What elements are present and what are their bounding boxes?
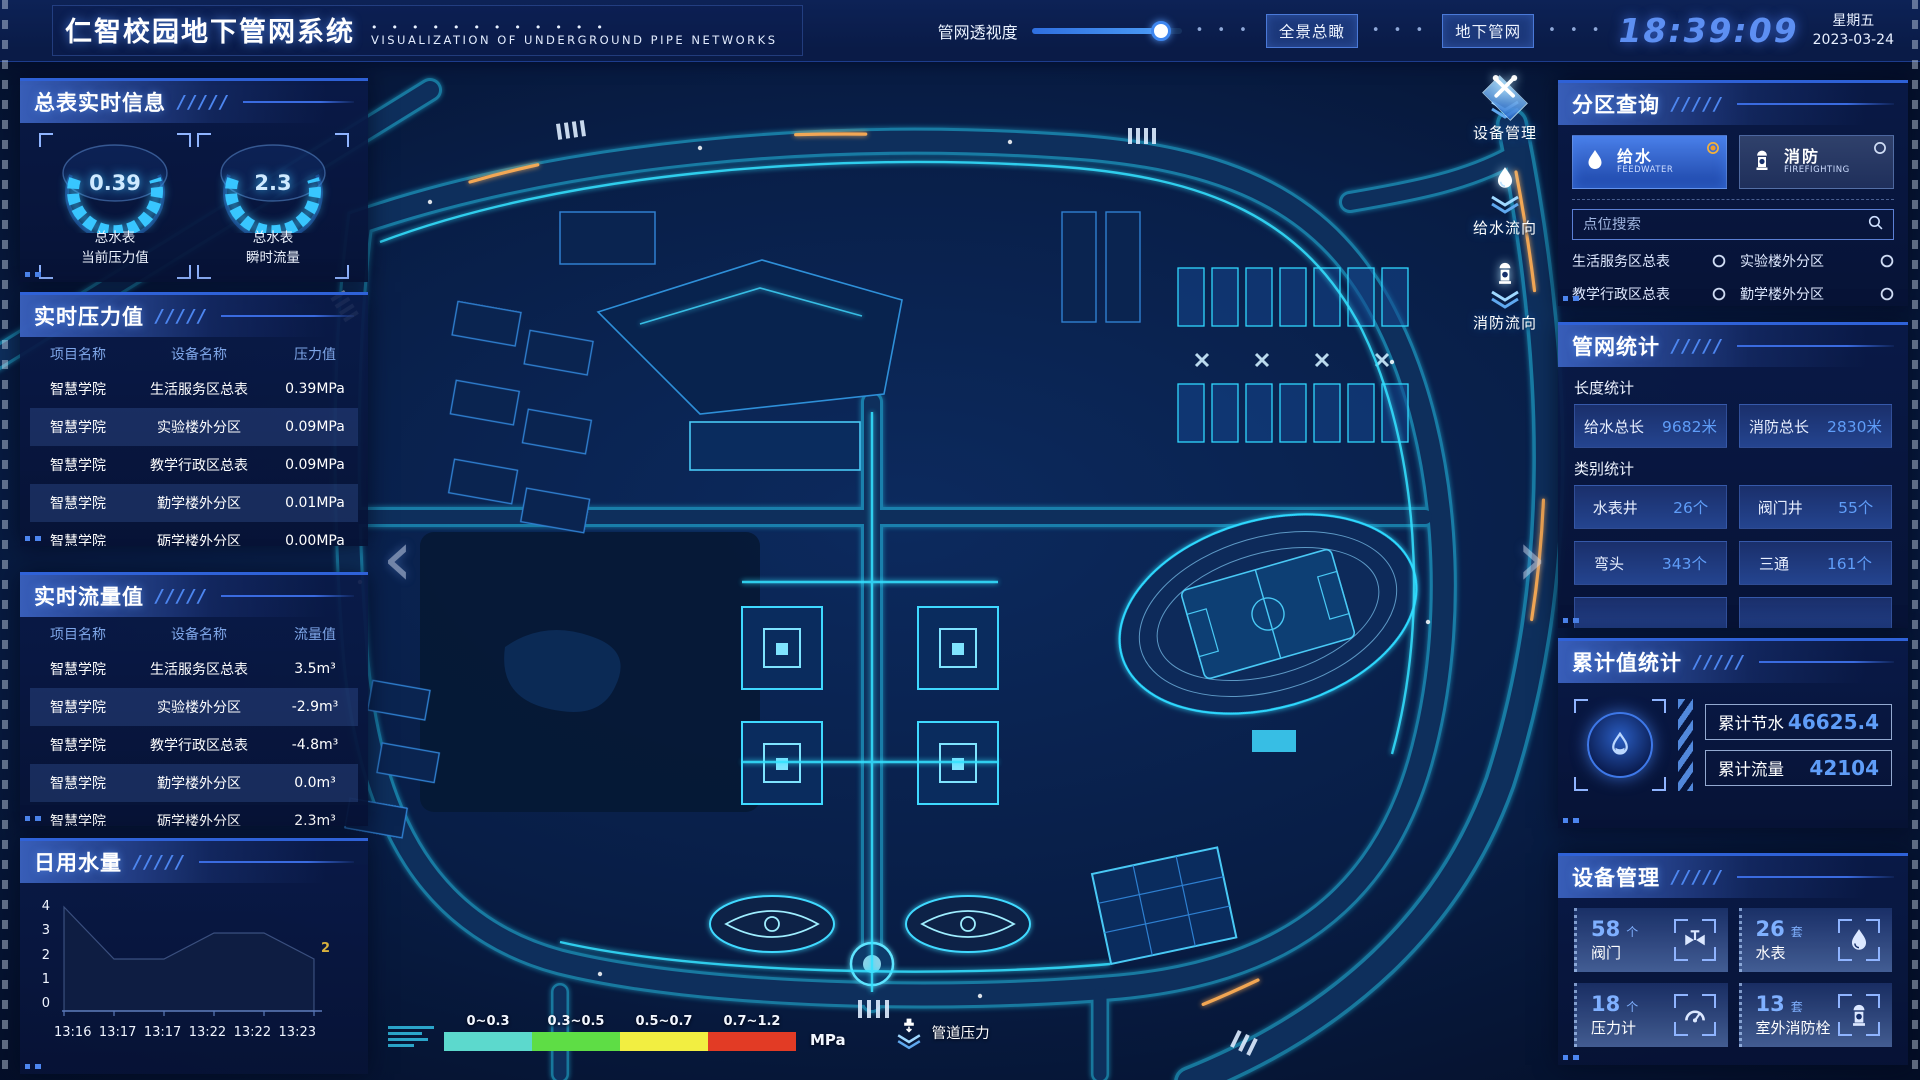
panel-title: 总表实时信息 [34, 87, 166, 117]
table-row[interactable]: 智慧学院实验楼外分区0.09MPa [30, 408, 358, 446]
water-saving-icon [1574, 699, 1666, 791]
hydrant-icon [1838, 994, 1880, 1036]
radio-unselected[interactable] [1713, 254, 1726, 267]
panel-realtime-info: 总表实时信息///// 0.39 总水表当前压力值 2.3 总水表瞬时流量 [20, 78, 368, 282]
tool-label: 给水流向 [1473, 217, 1537, 238]
chevron-down-icon [894, 1033, 924, 1051]
legend-color-block [708, 1032, 796, 1051]
pipe-opacity-slider[interactable] [1032, 28, 1182, 34]
dots-deco: • • • [1196, 23, 1252, 38]
water-drop-icon [1488, 161, 1522, 195]
stat-chip: 水表井26个 [1574, 485, 1727, 529]
wrench-icon [1488, 70, 1522, 104]
zone-item[interactable]: 教学行政区总表 [1572, 277, 1726, 306]
pressure-gauge-icon [1674, 994, 1716, 1036]
zone-item[interactable]: 生活服务区总表 [1572, 244, 1726, 277]
table-row[interactable]: 智慧学院砺学楼外分区0.00MPa [30, 522, 358, 546]
stat-chip: 阀门井55个 [1739, 485, 1892, 529]
table-row[interactable]: 智慧学院生活服务区总表0.39MPa [30, 370, 358, 408]
x-axis-ticks [64, 1011, 314, 1016]
dots-deco: • • • [1372, 23, 1428, 38]
legend-color-block [620, 1032, 708, 1051]
col-header: 项目名称 [30, 344, 126, 364]
table-row[interactable]: 智慧学院勤学楼外分区0.0m³ [30, 764, 358, 802]
panel-pipe-stats: 管网统计///// 长度统计 给水总长9682米 消防总长2830米 类别统计 … [1558, 322, 1908, 628]
title-slashes-deco: ///// [156, 306, 209, 327]
legend-deco-bars [388, 1026, 434, 1051]
pump-icon [899, 1017, 919, 1033]
legend-range-label: 0~0.3 [467, 1014, 510, 1029]
panel-realtime-pressure: 实时压力值///// 项目名称 设备名称 压力值 智慧学院生活服务区总表0.39… [20, 292, 368, 546]
col-header: 压力值 [272, 344, 358, 364]
tool-label: 消防流向 [1473, 312, 1537, 333]
legend-range-label: 0.7~1.2 [724, 1014, 781, 1029]
stat-chip: 三通161个 [1739, 541, 1892, 585]
device-card-pressure-gauges[interactable]: 18个压力计 [1574, 983, 1728, 1047]
valve-icon [1674, 919, 1716, 961]
category-stats-title: 类别统计 [1558, 448, 1908, 485]
panel-title: 设备管理 [1572, 862, 1660, 892]
clock: 18:39:09 [1618, 11, 1798, 50]
gauge-label-line1: 总水表 [246, 229, 300, 249]
tool-label: 设备管理 [1473, 122, 1537, 143]
col-header: 设备名称 [126, 344, 272, 364]
table-row[interactable]: 智慧学院实验楼外分区-2.9m³ [30, 688, 358, 726]
panorama-button[interactable]: 全景总瞰 [1266, 14, 1358, 48]
stat-chip-clipped [1574, 597, 1727, 628]
device-card-valves[interactable]: 58个阀门 [1574, 908, 1728, 972]
title-slashes-deco: ///// [156, 586, 209, 607]
underground-pipes-button[interactable]: 地下管网 [1442, 14, 1534, 48]
legend-pressure-label: 管道压力 [932, 1022, 990, 1043]
zone-item[interactable]: 勤学楼外分区 [1740, 277, 1894, 306]
daily-water-chart: 4 3 2 1 0 2 [20, 883, 368, 1023]
map-tools: 设备管理 给水流向 消防流向 [1462, 70, 1548, 339]
pipe-opacity-label: 管网透视度 [938, 19, 1018, 43]
legend-range-label: 0.3~0.5 [548, 1014, 605, 1029]
map-nav-left-arrow[interactable]: ‹ [382, 520, 413, 598]
panel-title: 管网统计 [1572, 331, 1660, 361]
panel-realtime-flow: 实时流量值///// 项目名称 设备名称 流量值 智慧学院生活服务区总表3.5m… [20, 572, 368, 826]
gauge-label-line2: 瞬时流量 [246, 249, 300, 269]
chart-end-value: 2 [321, 941, 330, 956]
stat-chip: 给水总长9682米 [1574, 404, 1727, 448]
col-header: 流量值 [272, 624, 358, 644]
device-card-hydrants[interactable]: 13套室外消防栓 [1739, 983, 1893, 1047]
radio-unselected[interactable] [1881, 254, 1894, 267]
radio-unselected[interactable] [1881, 287, 1894, 300]
panel-title: 日用水量 [34, 847, 122, 877]
panel-title: 累计值统计 [1572, 647, 1682, 677]
cumulative-flow: 累计流量42104 [1705, 750, 1892, 786]
gauge-value: 2.3 [197, 171, 349, 195]
stat-chip-clipped [1739, 597, 1892, 628]
chevron-down-icon [1487, 290, 1523, 310]
tab-feedwater[interactable]: 给水FEEDWATER [1572, 135, 1727, 189]
legend-range-label: 0.5~0.7 [636, 1014, 693, 1029]
header-bar: 仁智校园地下管网系统 •••••••••••• VISUALIZATION OF… [0, 0, 1920, 62]
tool-feedwater-flow[interactable]: 给水流向 [1473, 161, 1537, 238]
title-slashes-deco: ///// [1672, 94, 1725, 115]
radio-unselected[interactable] [1874, 142, 1886, 154]
cumulative-saving: 累计节水46625.4 [1705, 704, 1892, 740]
search-icon[interactable] [1868, 215, 1883, 234]
panel-zone-query: 分区查询///// 给水FEEDWATER 消防FIREFIGHTING 生活服… [1558, 80, 1908, 306]
panel-daily-water: 日用水量///// 4 3 2 1 0 2 13:16 13:17 13:17 [20, 838, 368, 1074]
table-row[interactable]: 智慧学院生活服务区总表3.5m³ [30, 650, 358, 688]
title-slashes-deco: ///// [1672, 336, 1725, 357]
panel-device-management: 设备管理///// 58个阀门 26套水表 18个压力计 13套室外消防栓 [1558, 853, 1908, 1065]
map-nav-right-arrow[interactable]: › [1516, 520, 1547, 598]
table-row[interactable]: 智慧学院教学行政区总表-4.8m³ [30, 726, 358, 764]
zone-item[interactable]: 实验楼外分区 [1740, 244, 1894, 277]
flow-gauge: 2.3 总水表瞬时流量 [197, 133, 349, 279]
title-slashes-deco: ///// [178, 92, 231, 113]
tool-fire-flow[interactable]: 消防流向 [1473, 256, 1537, 333]
gauge-label-line1: 总水表 [81, 229, 149, 249]
water-meter-icon [1838, 919, 1880, 961]
panel-cumulative-stats: 累计值统计///// 累计节水46625.4 累计流量42104 [1558, 638, 1908, 828]
pressure-gauge: 0.39 总水表当前压力值 [39, 133, 191, 279]
app-title: 仁智校园地下管网系统 [65, 10, 355, 49]
stat-chip: 弯头343个 [1574, 541, 1727, 585]
screen-edge-deco-right [1912, 0, 1918, 1080]
tab-firefighting[interactable]: 消防FIREFIGHTING [1739, 135, 1894, 189]
col-header: 设备名称 [126, 624, 272, 644]
title-slashes-deco: ///// [1694, 652, 1747, 673]
search-input[interactable] [1583, 217, 1868, 233]
weekday: 星期五 [1813, 12, 1894, 31]
daily-water-area [64, 907, 314, 1011]
app-title-block: 仁智校园地下管网系统 •••••••••••• VISUALIZATION OF… [52, 5, 803, 56]
gauge-value: 0.39 [39, 171, 191, 195]
length-stats-title: 长度统计 [1558, 367, 1908, 404]
panel-title: 分区查询 [1572, 89, 1660, 119]
table-row[interactable]: 智慧学院教学行政区总表0.09MPa [30, 446, 358, 484]
device-card-water-meters[interactable]: 26套水表 [1739, 908, 1893, 972]
water-drop-icon [1583, 148, 1607, 176]
screen-edge-deco-left [2, 0, 8, 1080]
tool-device-management[interactable]: 设备管理 [1473, 70, 1537, 143]
radio-selected[interactable] [1707, 142, 1719, 154]
stat-chip: 消防总长2830米 [1739, 404, 1892, 448]
legend-color-block [532, 1032, 620, 1051]
table-row[interactable]: 智慧学院勤学楼外分区0.01MPa [30, 484, 358, 522]
date: 2023-03-24 [1813, 31, 1894, 50]
legend-color-block [444, 1032, 532, 1051]
legend-unit: MPa [810, 1031, 846, 1049]
radio-unselected[interactable] [1713, 287, 1726, 300]
hazard-stripe-deco [1678, 699, 1693, 791]
col-header: 项目名称 [30, 624, 126, 644]
slider-fill [1032, 28, 1161, 34]
panel-title: 实时压力值 [34, 301, 144, 331]
chevron-down-icon [1487, 195, 1523, 215]
divider [1572, 199, 1894, 200]
slider-thumb[interactable] [1151, 21, 1171, 41]
pressure-legend: 0~0.3 0.3~0.5 0.5~0.7 0.7~1.2 MPa 管道压力 [388, 1014, 990, 1051]
dots-deco: • • • [1548, 23, 1604, 38]
hydrant-icon [1750, 148, 1774, 176]
panel-title: 实时流量值 [34, 581, 144, 611]
point-search[interactable] [1572, 209, 1894, 240]
table-row[interactable]: 智慧学院砺学楼外分区2.3m³ [30, 802, 358, 826]
title-slashes-deco: ///// [1672, 867, 1725, 888]
app-subtitle: VISUALIZATION OF UNDERGROUND PIPE NETWOR… [371, 34, 778, 47]
gauge-label-line2: 当前压力值 [81, 249, 149, 269]
hydrant-icon [1488, 256, 1522, 290]
title-slashes-deco: ///// [134, 852, 187, 873]
